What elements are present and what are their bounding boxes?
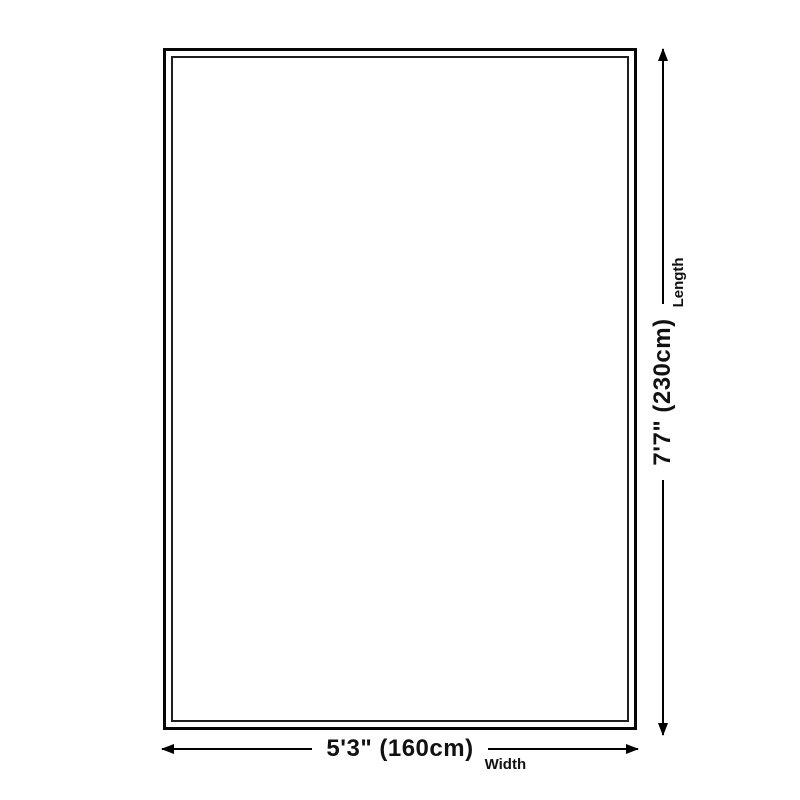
- width-dimension: 5'3" (160cm) Width: [162, 734, 638, 764]
- length-value: 7'7" (230cm): [649, 318, 677, 465]
- width-value: 5'3" (160cm): [326, 735, 473, 763]
- width-line-left-segment: [162, 748, 312, 750]
- arrow-left-icon: [161, 744, 174, 754]
- rug-inner-border: [171, 56, 629, 722]
- arrow-right-icon: [626, 744, 639, 754]
- arrow-up-icon: [658, 48, 668, 61]
- length-label: Length: [671, 257, 687, 307]
- rug-outline: [163, 48, 637, 730]
- length-line-top-segment: Length: [662, 49, 664, 304]
- width-label: Width: [485, 757, 527, 773]
- arrow-down-icon: [658, 723, 668, 736]
- width-line-right-segment: Width: [488, 748, 638, 750]
- length-line-bottom-segment: [662, 480, 664, 735]
- rug-size-diagram: 5'3" (160cm) Width 7'7" (230cm) Length: [0, 0, 800, 800]
- length-dimension: 7'7" (230cm) Length: [648, 49, 678, 735]
